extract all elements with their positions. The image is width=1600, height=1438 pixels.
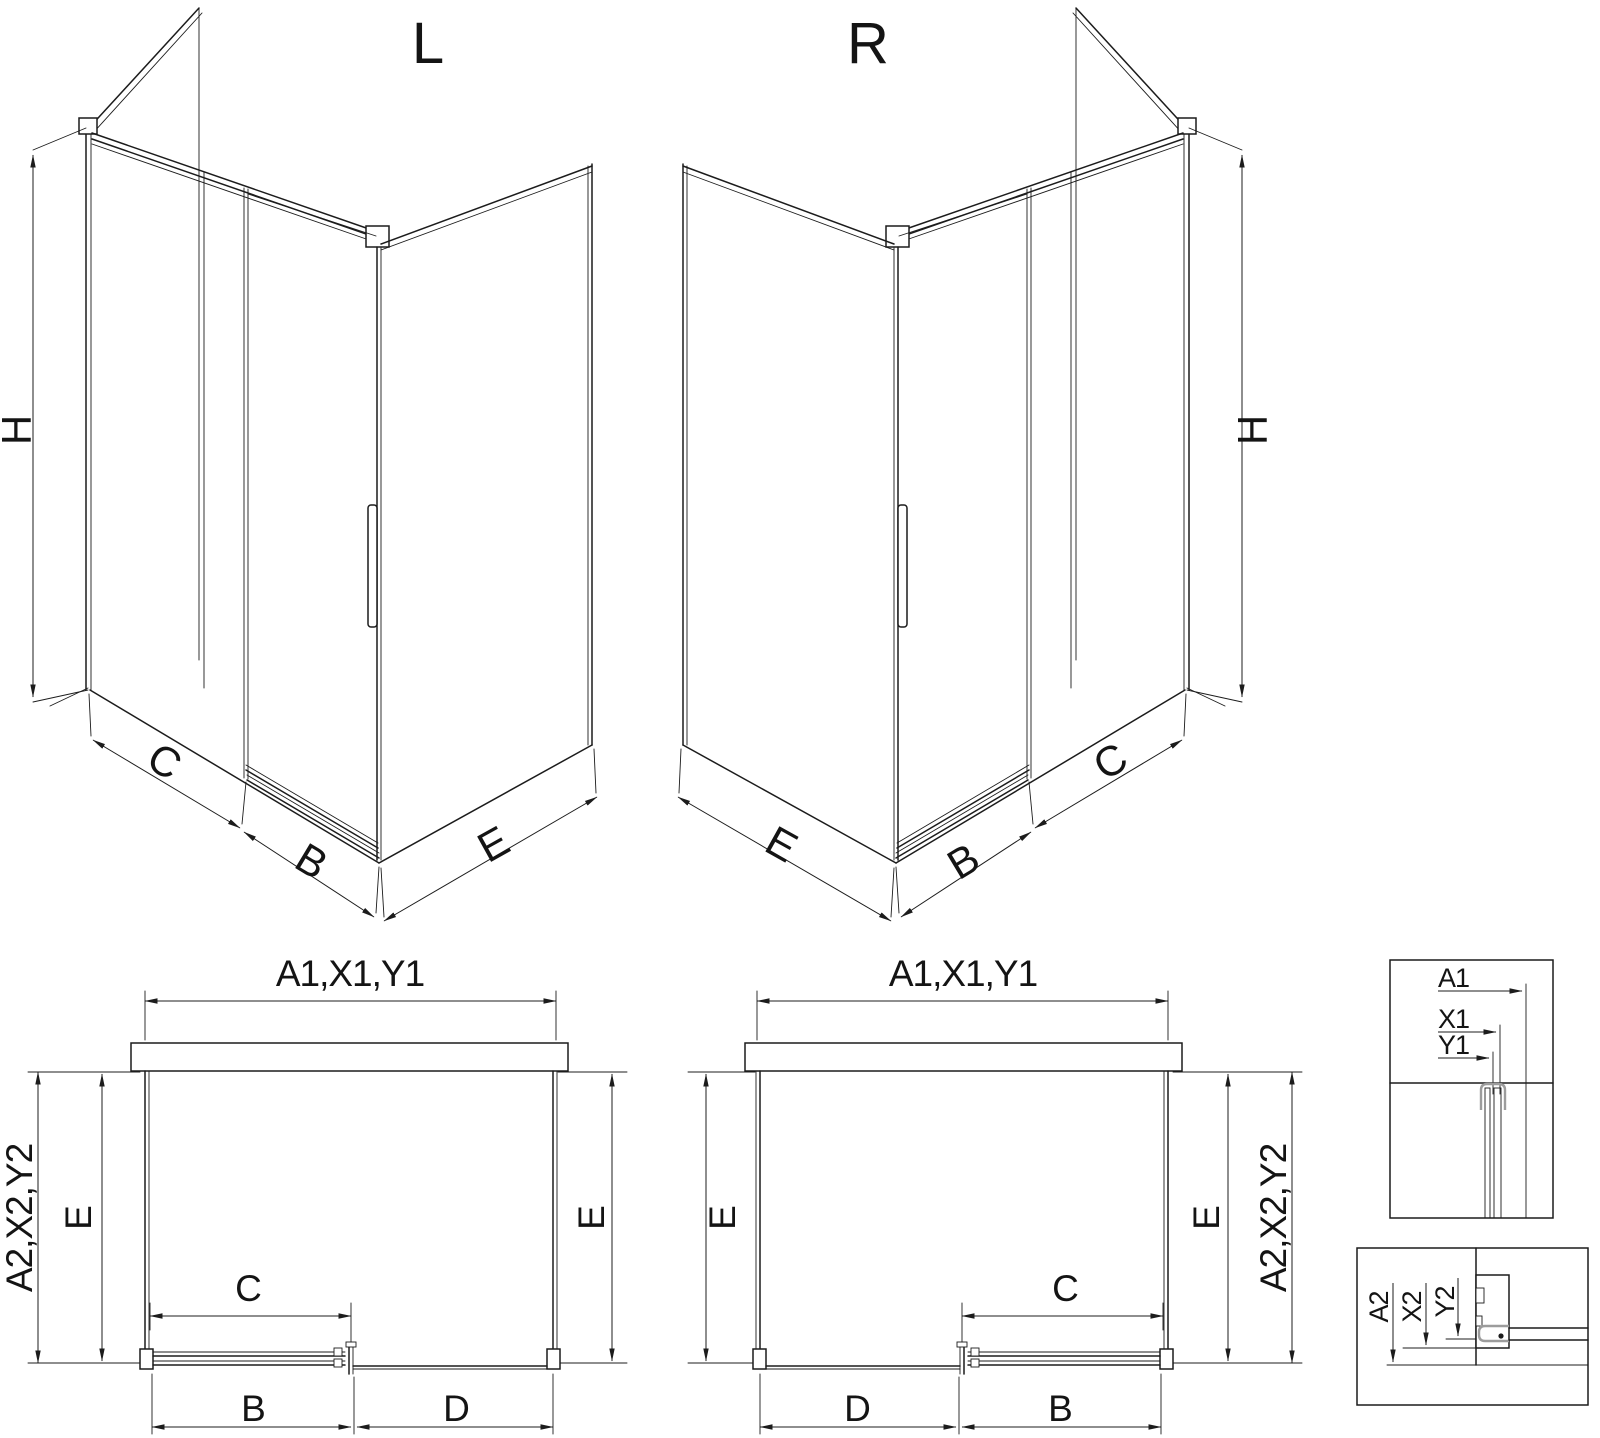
technical-drawing-page: H C B E L bbox=[0, 0, 1600, 1438]
dim-label-b-left-plan: B bbox=[241, 1388, 265, 1429]
detail-wall-profile: A1 X1 Y1 bbox=[1390, 960, 1553, 1218]
dim-label-d-right-plan: D bbox=[844, 1388, 870, 1429]
detail-floor-profile: A2 X2 Y2 bbox=[1357, 1248, 1588, 1405]
dim-label-depth-total-left-plan: A2,X2,Y2 bbox=[0, 1144, 40, 1292]
view-label-left: L bbox=[412, 11, 444, 76]
dim-label-height-right: H bbox=[1229, 415, 1276, 445]
dim-label-c-right-plan: C bbox=[1052, 1268, 1078, 1309]
detail-dim-y2: Y2 bbox=[1430, 1286, 1460, 1317]
detail-dim-x2: X2 bbox=[1397, 1291, 1427, 1322]
dim-label-e-left-right-plan: E bbox=[702, 1206, 743, 1230]
shower-enclosure-technical-drawing: H C B E L bbox=[0, 0, 1600, 1438]
dim-label-e-right-right-plan: E bbox=[1186, 1206, 1227, 1230]
dim-label-door-right: B bbox=[939, 834, 987, 889]
view-label-right: R bbox=[847, 11, 889, 76]
dim-label-depth-total-right-plan: A2,X2,Y2 bbox=[1253, 1144, 1294, 1292]
dim-label-e-right-left-plan: E bbox=[571, 1206, 612, 1230]
dim-label-e-left-left-plan: E bbox=[58, 1206, 99, 1230]
door-handle bbox=[898, 505, 907, 627]
dim-label-front-total-left-plan: A1,X1,Y1 bbox=[276, 953, 424, 994]
dim-label-fixed-left: C bbox=[140, 733, 190, 789]
dim-label-height-left: H bbox=[0, 415, 40, 445]
dim-label-door-left: B bbox=[288, 834, 336, 889]
door-handle bbox=[368, 505, 377, 627]
dim-label-fixed-right: C bbox=[1085, 733, 1135, 789]
wall-section bbox=[131, 1043, 568, 1071]
dim-label-d-left-plan: D bbox=[443, 1388, 469, 1429]
detail-dim-y1: Y1 bbox=[1438, 1030, 1469, 1060]
iso-view-left: H C B E L bbox=[0, 8, 597, 921]
plan-view-right: A1,X1,Y1 A2,X2,Y2 E E C B D bbox=[688, 953, 1302, 1434]
iso-view-right: H C B E R bbox=[678, 8, 1276, 921]
detail-dim-a1: A1 bbox=[1438, 963, 1469, 993]
wall-section bbox=[745, 1043, 1182, 1071]
dim-label-front-total-right-plan: A1,X1,Y1 bbox=[889, 953, 1037, 994]
dim-label-b-right-plan: B bbox=[1048, 1388, 1072, 1429]
dim-label-c-left-plan: C bbox=[235, 1268, 261, 1309]
dim-label-side-right: E bbox=[758, 817, 805, 872]
detail-dim-a2: A2 bbox=[1364, 1291, 1394, 1322]
plan-view-left: A1,X1,Y1 A2,X2,Y2 E E C B D bbox=[0, 953, 627, 1434]
dim-label-side-left: E bbox=[470, 817, 517, 872]
